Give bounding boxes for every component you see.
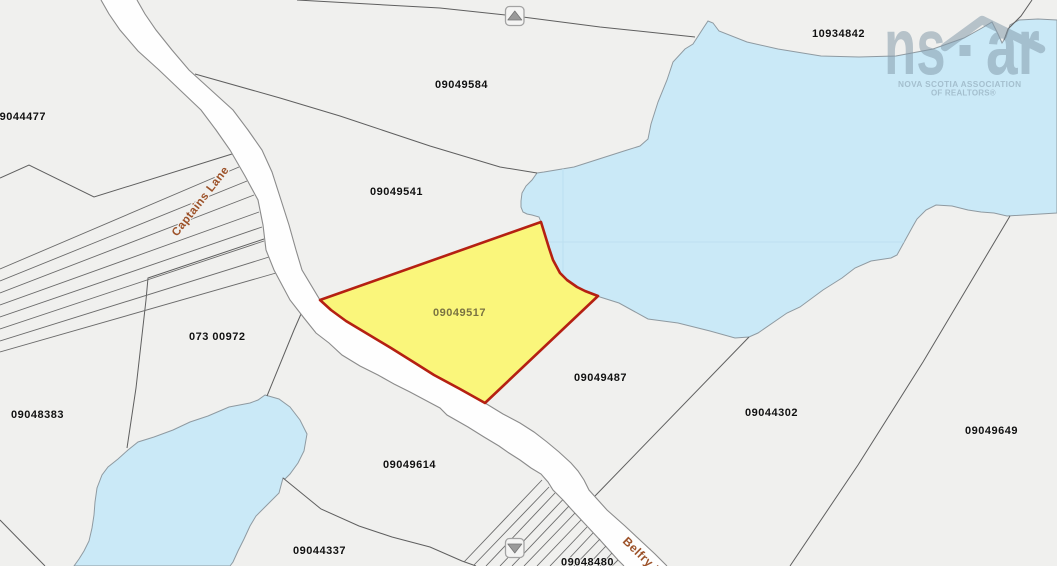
svg-text:09044337: 09044337 (293, 545, 346, 557)
svg-text:09049649: 09049649 (965, 425, 1018, 437)
svg-text:09048383: 09048383 (11, 409, 64, 421)
svg-text:10934842: 10934842 (812, 28, 865, 40)
svg-text:OF REALTORS®: OF REALTORS® (931, 89, 996, 98)
svg-text:09049541: 09049541 (370, 186, 423, 198)
svg-text:09044477: 09044477 (0, 111, 46, 123)
svg-text:073 00972: 073 00972 (189, 331, 246, 343)
svg-text:09048480: 09048480 (561, 557, 614, 566)
svg-text:09049487: 09049487 (574, 372, 627, 384)
svg-text:09044302: 09044302 (745, 407, 798, 419)
svg-text:NOVA SCOTIA ASSOCIATION: NOVA SCOTIA ASSOCIATION (898, 79, 1021, 89)
svg-text:09049614: 09049614 (383, 459, 436, 471)
svg-text:ar: ar (986, 1, 1040, 91)
svg-text:09049584: 09049584 (435, 79, 488, 91)
svg-text:09049517: 09049517 (433, 307, 486, 319)
